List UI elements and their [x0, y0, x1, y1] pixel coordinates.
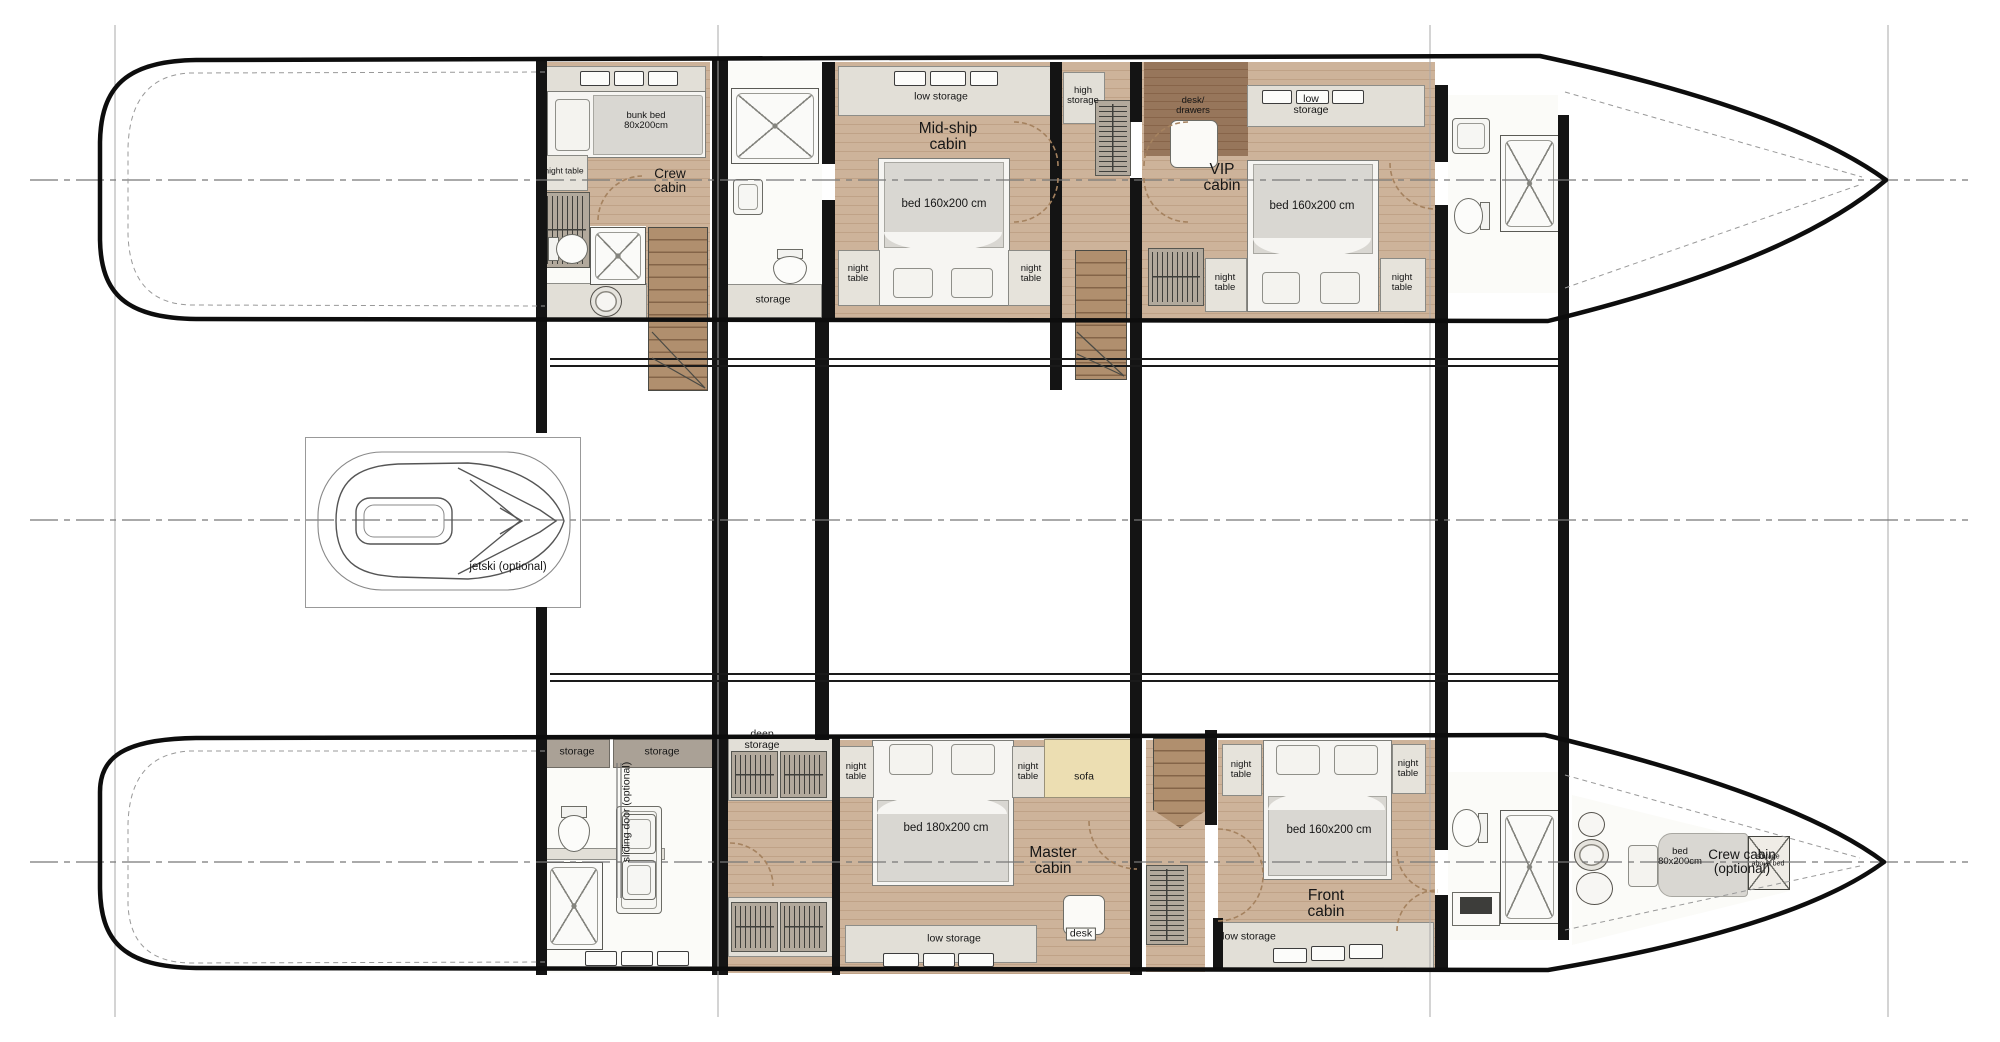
night-table-label: night table [544, 167, 584, 176]
bow-crew-bed-label: bed 80x200cm [1657, 847, 1703, 867]
wall [1435, 895, 1448, 970]
low-storage-label: low storage [1222, 932, 1277, 943]
deep-storage-label: deep storage [733, 729, 791, 751]
bridgedeck-lines [550, 359, 1558, 681]
wall [1558, 115, 1569, 940]
pillow [889, 744, 933, 775]
night-table-label: night table [836, 762, 876, 782]
wall [1130, 178, 1142, 975]
low-storage-label: low storage [927, 934, 982, 945]
desk-label: desk [1066, 928, 1096, 941]
low-storage-label: low storage [1285, 94, 1337, 116]
pillow [1334, 745, 1378, 775]
wardrobe [1146, 865, 1188, 945]
wall [1130, 62, 1142, 122]
sofa-label: sofa [1074, 772, 1094, 783]
pillow [951, 268, 993, 298]
pillow [1320, 272, 1360, 304]
desk-drawers-label: desk/ drawers [1169, 96, 1217, 116]
jetski-label: jetski (optional) [469, 562, 546, 574]
toilet [556, 806, 592, 852]
front-bed-label: bed 160x200 cm [1286, 825, 1371, 837]
wall [1205, 730, 1217, 825]
wall [712, 60, 728, 975]
jetski-garage [305, 437, 581, 608]
night-table-label: night table [1221, 760, 1261, 780]
bunk-bed-label: bunk bed 80x200cm [607, 111, 685, 131]
wall [822, 62, 835, 164]
washing-machine [590, 286, 622, 317]
stairs [648, 227, 708, 391]
midship-bed-label: bed 160x200 cm [901, 199, 986, 211]
night-table-label: night table [1008, 762, 1048, 782]
drawer [1311, 946, 1345, 961]
pillow [951, 744, 995, 775]
drawer [621, 951, 653, 966]
midship-cabin-label: Mid-ship cabin [901, 121, 996, 153]
night-table-label: night table [1388, 759, 1428, 779]
wardrobe [731, 902, 778, 952]
wall [1435, 85, 1448, 162]
pillow [1262, 272, 1300, 304]
sofa [1044, 739, 1136, 798]
pillow [555, 99, 590, 151]
wall [1213, 918, 1223, 970]
drawer [614, 71, 644, 86]
drawer [1273, 948, 1307, 963]
wardrobe [780, 902, 827, 952]
wall [1435, 738, 1448, 850]
storage-label: storage [559, 747, 594, 758]
drawer [930, 71, 966, 86]
drawer [883, 953, 919, 967]
wardrobe [731, 751, 778, 798]
drawer [923, 953, 955, 967]
washing-machine [1574, 839, 1609, 871]
wardrobe [1095, 100, 1131, 176]
stairs [1153, 738, 1207, 828]
master-bed-label: bed 180x200 cm [903, 823, 988, 835]
storage-label: storage [755, 295, 790, 306]
night-table-label: night table [838, 264, 878, 284]
drawer [657, 951, 689, 966]
toilet [771, 249, 809, 284]
shower [1500, 135, 1559, 232]
sink [1452, 118, 1490, 154]
storage-label: storage [644, 747, 679, 758]
toilet [548, 232, 588, 266]
shower [731, 88, 819, 164]
night-table-label: night table [1011, 264, 1051, 284]
wall [536, 607, 547, 975]
pillow [1628, 845, 1658, 887]
low-storage-label: low storage [911, 92, 971, 103]
high-storage-label: high storage [1060, 86, 1106, 106]
round-hatch [1578, 812, 1605, 837]
vip-bed-label: bed 160x200 cm [1269, 201, 1354, 213]
drawer [970, 71, 998, 86]
sliding-door-label: sliding door (optional) [622, 752, 633, 872]
toilet [1452, 806, 1488, 850]
shower [1500, 810, 1559, 924]
wardrobe [780, 751, 827, 798]
drawer [1349, 944, 1383, 959]
crew-cabin-label: Crew cabin [640, 167, 700, 195]
stairs [1075, 250, 1127, 380]
front-cabin-label: Front cabin [1295, 888, 1357, 920]
vip-cabin-label: VIP cabin [1192, 162, 1252, 194]
drawer [894, 71, 926, 86]
drawer [585, 951, 617, 966]
storage-above-bed-label: storage above bed [1750, 854, 1786, 869]
pillow [1276, 745, 1320, 775]
wall [1050, 62, 1062, 390]
wardrobe [1148, 248, 1204, 306]
pillow [893, 268, 933, 298]
wall [822, 200, 835, 320]
shower [590, 227, 646, 285]
night-table-label: night table [1205, 273, 1245, 293]
sink [733, 179, 763, 215]
round-hatch [1576, 872, 1613, 905]
night-table-label: night table [1382, 273, 1422, 293]
toilet [1454, 196, 1490, 236]
master-cabin-label: Master cabin [1016, 845, 1091, 877]
wall [1435, 205, 1448, 738]
drawer [648, 71, 678, 86]
tv-screen [1452, 892, 1500, 926]
catamaran-floor-plan: Crew cabin bunk bed 80x200cm night table… [0, 0, 2000, 1042]
drawer [958, 953, 994, 967]
drawer [580, 71, 610, 86]
shower [545, 862, 603, 950]
wall [536, 60, 547, 433]
wall [815, 322, 829, 740]
